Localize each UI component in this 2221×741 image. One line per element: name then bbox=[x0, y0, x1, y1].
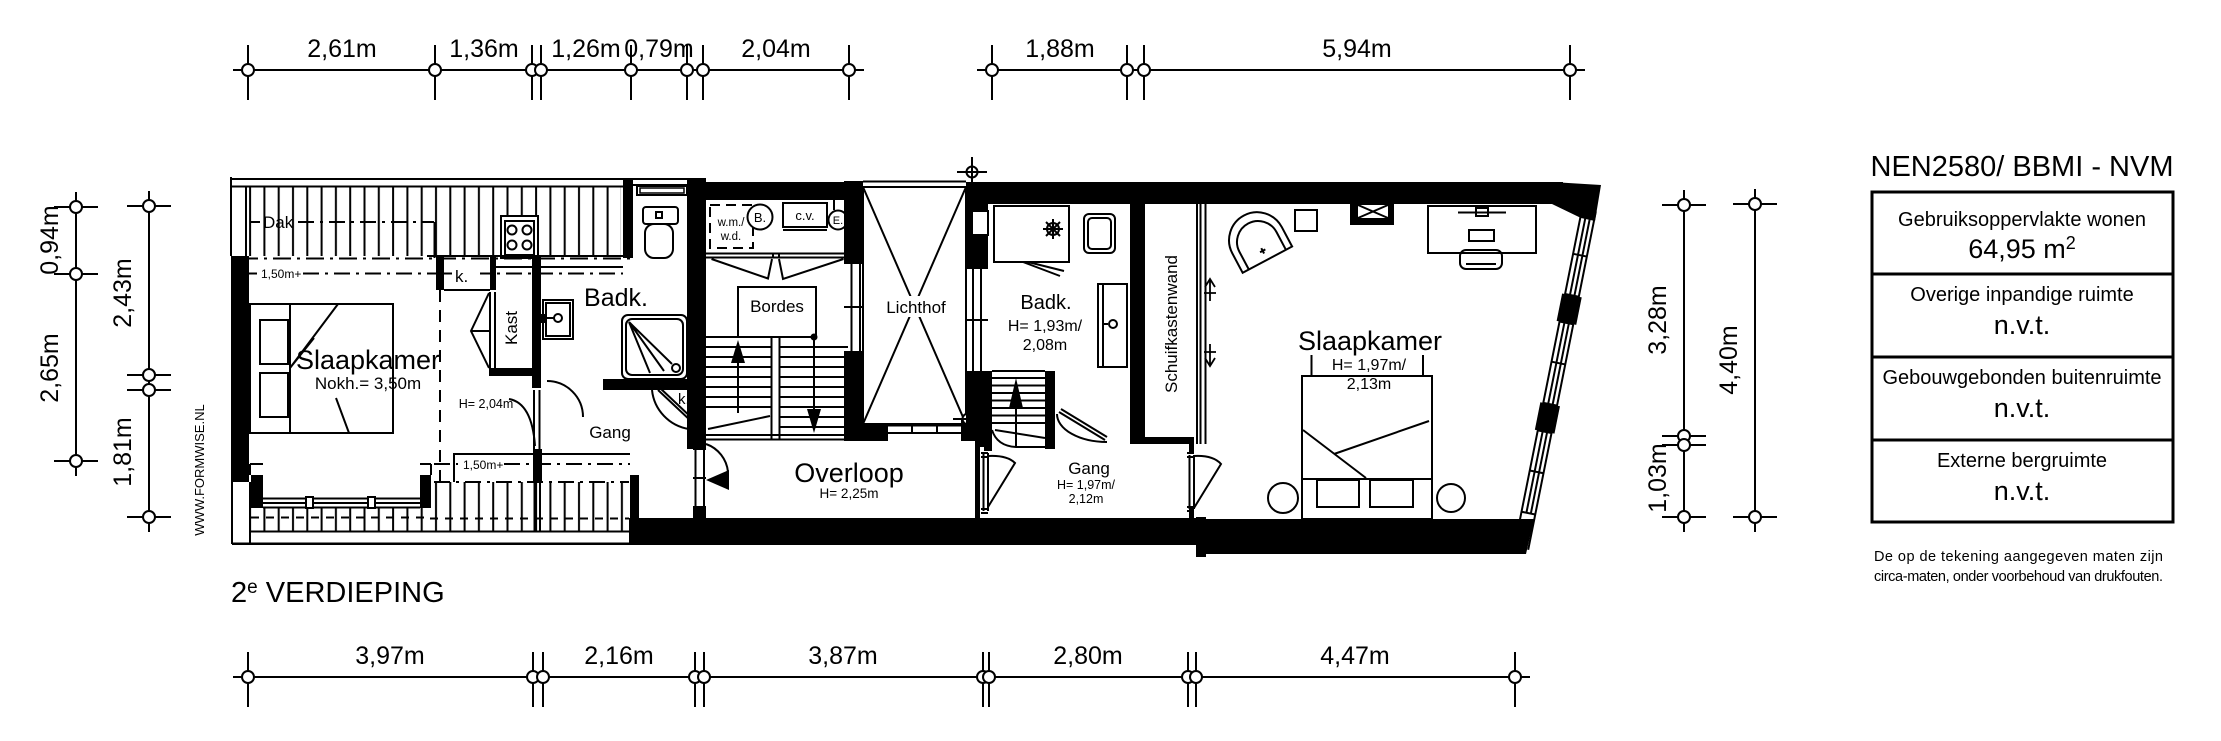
svg-text:w.d.: w.d. bbox=[720, 231, 741, 243]
svg-text:4,47m: 4,47m bbox=[1320, 642, 1389, 670]
svg-text:c.v.: c.v. bbox=[795, 208, 814, 223]
svg-text:n.v.t.: n.v.t. bbox=[1994, 476, 2051, 506]
svg-text:Badk.: Badk. bbox=[1020, 292, 1071, 314]
svg-text:1,50m+: 1,50m+ bbox=[261, 267, 301, 281]
svg-text:H= 1,93m/: H= 1,93m/ bbox=[1008, 318, 1083, 335]
svg-text:k.: k. bbox=[678, 391, 690, 408]
svg-text:n.v.t.: n.v.t. bbox=[1994, 393, 2051, 423]
svg-text:Externe bergruimte: Externe bergruimte bbox=[1937, 450, 2107, 472]
svg-text:3,28m: 3,28m bbox=[1644, 285, 1672, 354]
svg-text:w.m./: w.m./ bbox=[717, 217, 746, 229]
svg-text:1,81m: 1,81m bbox=[109, 417, 137, 486]
svg-text:2,80m: 2,80m bbox=[1053, 642, 1122, 670]
svg-text:3,97m: 3,97m bbox=[355, 642, 424, 670]
svg-text:WWW.FORMWISE.NL: WWW.FORMWISE.NL bbox=[192, 404, 207, 535]
svg-text:Overige inpandige ruimte: Overige inpandige ruimte bbox=[1910, 284, 2133, 306]
svg-text:1,36m: 1,36m bbox=[449, 35, 518, 63]
svg-text:4,40m: 4,40m bbox=[1715, 325, 1743, 394]
svg-text:0,94m: 0,94m bbox=[36, 205, 64, 274]
svg-text:H= 1,97m/: H= 1,97m/ bbox=[1332, 357, 1407, 374]
svg-text:Gang: Gang bbox=[589, 423, 631, 442]
svg-text:2,43m: 2,43m bbox=[109, 258, 137, 327]
svg-text:Gang: Gang bbox=[1068, 459, 1110, 478]
svg-text:H= 2,04m: H= 2,04m bbox=[459, 397, 514, 411]
svg-text:2,08m: 2,08m bbox=[1023, 337, 1067, 354]
svg-text:2,04m: 2,04m bbox=[741, 35, 810, 63]
svg-text:2,12m: 2,12m bbox=[1069, 492, 1104, 506]
svg-text:2,65m: 2,65m bbox=[36, 333, 64, 402]
svg-text:H= 1,97m/: H= 1,97m/ bbox=[1057, 478, 1116, 492]
svg-text:0,79m: 0,79m bbox=[624, 35, 693, 63]
svg-text:2,16m: 2,16m bbox=[584, 642, 653, 670]
svg-text:Nokh.= 3,50m: Nokh.= 3,50m bbox=[315, 374, 421, 393]
svg-text:Dak: Dak bbox=[263, 213, 294, 232]
svg-text:Bordes: Bordes bbox=[750, 297, 804, 316]
svg-text:E.: E. bbox=[833, 215, 843, 227]
svg-text:circa-maten, onder voorbehoud: circa-maten, onder voorbehoud van drukfo… bbox=[1874, 569, 2163, 585]
svg-text:H= 2,25m: H= 2,25m bbox=[820, 486, 879, 501]
svg-text:Slaapkamer: Slaapkamer bbox=[296, 345, 440, 375]
svg-text:64,95 m2: 64,95 m2 bbox=[1968, 233, 2076, 264]
svg-text:Gebruiksoppervlakte wonen: Gebruiksoppervlakte wonen bbox=[1898, 209, 2146, 231]
svg-text:3,87m: 3,87m bbox=[808, 642, 877, 670]
svg-text:5,94m: 5,94m bbox=[1322, 35, 1391, 63]
svg-text:1,03m: 1,03m bbox=[1644, 443, 1672, 512]
svg-text:Gebouwgebonden buitenruimte: Gebouwgebonden buitenruimte bbox=[1882, 367, 2161, 389]
svg-text:2,13m: 2,13m bbox=[1347, 376, 1391, 393]
svg-text:2,61m: 2,61m bbox=[307, 35, 376, 63]
svg-text:Schuifkastenwand: Schuifkastenwand bbox=[1162, 255, 1181, 393]
svg-text:NEN2580/ BBMI - NVM: NEN2580/ BBMI - NVM bbox=[1871, 151, 2174, 183]
svg-text:Badk.: Badk. bbox=[584, 284, 648, 312]
svg-text:Slaapkamer: Slaapkamer bbox=[1298, 326, 1442, 356]
svg-text:1,88m: 1,88m bbox=[1025, 35, 1094, 63]
svg-text:B.: B. bbox=[754, 210, 766, 225]
svg-text:k.: k. bbox=[455, 267, 468, 286]
svg-text:n.v.t.: n.v.t. bbox=[1994, 310, 2051, 340]
svg-text:Kast: Kast bbox=[502, 311, 521, 345]
svg-text:Lichthof: Lichthof bbox=[886, 298, 946, 317]
svg-text:1,50m+: 1,50m+ bbox=[463, 458, 503, 472]
svg-text:Overloop: Overloop bbox=[794, 458, 904, 488]
svg-text:1,26m: 1,26m bbox=[551, 35, 620, 63]
svg-text:2e VERDIEPING: 2e VERDIEPING bbox=[231, 577, 445, 609]
svg-text:De op de tekening aangegeven m: De op de tekening aangegeven maten zijn bbox=[1874, 549, 2163, 565]
